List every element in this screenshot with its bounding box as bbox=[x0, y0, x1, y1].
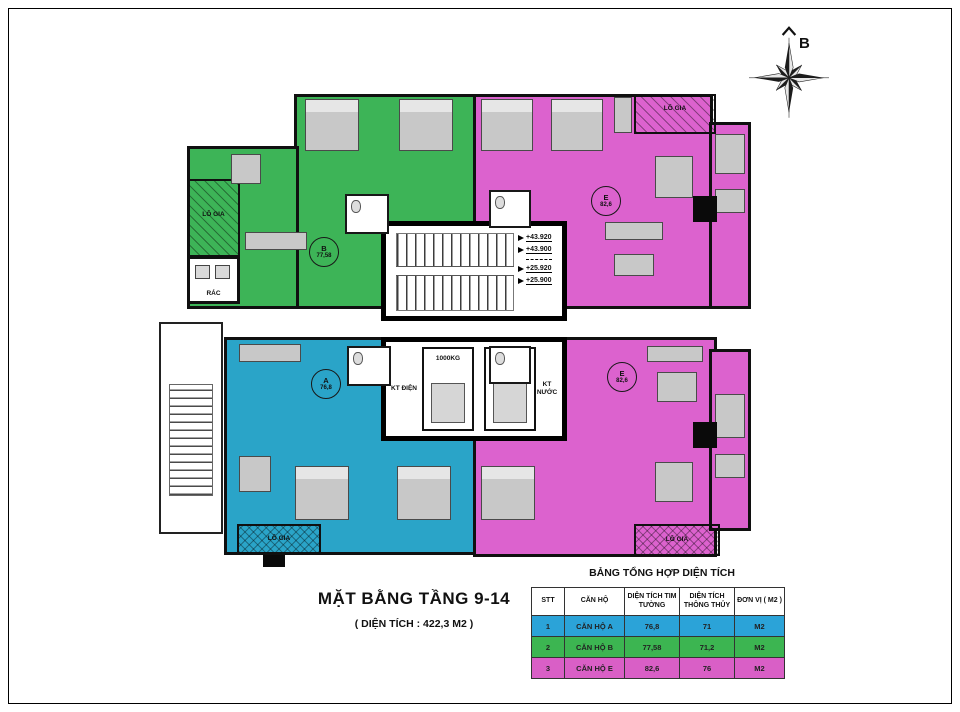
column-header: ĐƠN VỊ ( M2 ) bbox=[735, 588, 785, 616]
section-marker bbox=[693, 196, 717, 222]
section-marker bbox=[263, 555, 285, 567]
toilet bbox=[351, 200, 361, 213]
table-cell: 76 bbox=[680, 658, 735, 679]
table-cell: M2 bbox=[735, 658, 785, 679]
bed bbox=[399, 99, 453, 151]
stairwell: +43.920 +43.900 +25.920 +25.900 bbox=[381, 221, 567, 321]
table-cell: 76,8 bbox=[625, 616, 680, 637]
table-cell: CĂN HỘ B bbox=[565, 637, 625, 658]
unit-label-b: B 77,58 bbox=[309, 237, 339, 267]
sofa bbox=[239, 344, 301, 362]
water-shaft-label: KT NƯỚC bbox=[532, 342, 562, 436]
seat bbox=[715, 189, 745, 213]
elevator-lobby: KT ĐIỆN 1000KG 1000KG KT NƯỚC bbox=[381, 337, 567, 441]
stair-treads bbox=[169, 384, 213, 496]
table-cell: 1 bbox=[532, 616, 565, 637]
elevation-value: +25.900 bbox=[526, 277, 552, 286]
elevation-flag-icon bbox=[518, 278, 524, 284]
section-marker bbox=[693, 422, 717, 448]
bed bbox=[305, 99, 359, 151]
elevation-divider bbox=[526, 259, 552, 260]
plan-subtitle: ( DIỆN TÍCH : 422,3 M2 ) bbox=[264, 618, 564, 630]
unit-letter: E bbox=[603, 194, 608, 202]
bed bbox=[481, 99, 533, 151]
bathroom bbox=[489, 190, 531, 228]
unit-area: 77,58 bbox=[316, 253, 331, 259]
table bbox=[657, 372, 697, 402]
electrical-shaft-label: KT ĐIỆN bbox=[388, 342, 420, 436]
elevation-marks: +43.920 +43.900 +25.920 +25.900 bbox=[518, 232, 566, 287]
balcony-label: LÔ GIA bbox=[636, 536, 718, 543]
elevator-cab bbox=[431, 383, 465, 423]
unit-area: 76,8 bbox=[320, 385, 332, 391]
summary-table: STT CĂN HỘ DIỆN TÍCH TIM TƯỜNG DIỆN TÍCH… bbox=[531, 587, 785, 679]
balcony-label: LÔ GIA bbox=[636, 105, 714, 112]
dining-table bbox=[655, 156, 693, 198]
north-arrow-icon bbox=[783, 28, 796, 35]
toilet bbox=[495, 196, 505, 209]
unit-letter: B bbox=[321, 245, 326, 253]
sofa bbox=[605, 222, 663, 240]
bathroom bbox=[345, 194, 389, 234]
unit-area: 82,6 bbox=[616, 378, 628, 384]
elevation-flag-icon bbox=[518, 247, 524, 253]
unit-label-a: A 76,8 bbox=[311, 369, 341, 399]
elevator-capacity-label: 1000KG bbox=[424, 355, 472, 362]
balcony-bottom-left: LÔ GIA bbox=[237, 524, 321, 554]
table-cell: 82,6 bbox=[625, 658, 680, 679]
balcony-label: LÔ GIA bbox=[239, 535, 319, 542]
stair-landing bbox=[396, 266, 514, 276]
bathroom bbox=[489, 346, 531, 384]
elevation-value: +43.920 bbox=[526, 234, 552, 243]
wardrobe bbox=[715, 134, 745, 174]
exterior-staircase bbox=[159, 322, 223, 534]
balcony-left: LÔ GIA bbox=[187, 179, 240, 257]
wardrobe bbox=[715, 394, 745, 438]
compass-north-label: B bbox=[799, 35, 810, 52]
floor-plan: LÔ GIA LÔ GIA LÔ GIA LÔ GIA RÁC +43.920 bbox=[159, 94, 755, 564]
balcony-top-right: LÔ GIA bbox=[634, 94, 716, 134]
bed bbox=[481, 466, 535, 520]
coffee-table bbox=[614, 254, 654, 276]
unit-label-e-top: E 82,6 bbox=[591, 186, 621, 216]
trash-bin bbox=[195, 265, 210, 279]
table-cell: 71 bbox=[680, 616, 735, 637]
drawing-sheet: B LÔ GIA LÔ GIA LÔ GIA LÔ GIA RÁC bbox=[8, 8, 952, 704]
balcony-label: LÔ GIA bbox=[189, 211, 238, 218]
kitchen-counter bbox=[614, 97, 632, 133]
seat bbox=[715, 454, 745, 478]
table-cell: 2 bbox=[532, 637, 565, 658]
unit-letter: E bbox=[619, 370, 624, 378]
sofa bbox=[245, 232, 307, 250]
toilet bbox=[495, 352, 505, 365]
table-cell: CĂN HỘ E bbox=[565, 658, 625, 679]
column-header: STT bbox=[532, 588, 565, 616]
balcony-bottom-right: LÔ GIA bbox=[634, 524, 720, 556]
unit-area: 82,6 bbox=[600, 202, 612, 208]
table-cell: 3 bbox=[532, 658, 565, 679]
table-cell: 77,58 bbox=[625, 637, 680, 658]
bathroom bbox=[347, 346, 391, 386]
area-summary: BẢNG TỔNG HỢP DIỆN TÍCH STT CĂN HỘ DIỆN … bbox=[531, 567, 793, 679]
plan-title: MẶT BẰNG TẦNG 9-14 bbox=[264, 589, 564, 609]
table-cell: M2 bbox=[735, 616, 785, 637]
bed bbox=[551, 99, 603, 151]
elevation-value: +43.900 bbox=[526, 246, 552, 255]
unit-letter: A bbox=[323, 377, 328, 385]
kitchen-table bbox=[231, 154, 261, 184]
unit-label-e-bottom: E 82,6 bbox=[607, 362, 637, 392]
dining-table bbox=[239, 456, 271, 492]
trash-bin bbox=[215, 265, 230, 279]
column-header: CĂN HỘ bbox=[565, 588, 625, 616]
elevator-1: 1000KG bbox=[422, 347, 474, 431]
table-cell: 71,2 bbox=[680, 637, 735, 658]
table-cell: M2 bbox=[735, 637, 785, 658]
elevator-cab bbox=[493, 383, 527, 423]
dining-table bbox=[655, 462, 693, 502]
table-cell: CĂN HỘ A bbox=[565, 616, 625, 637]
trash-label: RÁC bbox=[190, 290, 237, 297]
summary-title: BẢNG TỔNG HỢP DIỆN TÍCH bbox=[531, 567, 793, 579]
title-block: MẶT BẰNG TẦNG 9-14 ( DIỆN TÍCH : 422,3 M… bbox=[264, 589, 564, 630]
elevation-flag-icon bbox=[518, 266, 524, 272]
elevation-flag-icon bbox=[518, 235, 524, 241]
bed bbox=[397, 466, 451, 520]
trash-room: RÁC bbox=[187, 256, 240, 304]
elevation-value: +25.920 bbox=[526, 265, 552, 274]
bed bbox=[295, 466, 349, 520]
bench bbox=[647, 346, 703, 362]
column-header: DIỆN TÍCH TIM TƯỜNG bbox=[625, 588, 680, 616]
toilet bbox=[353, 352, 363, 365]
column-header: DIỆN TÍCH THÔNG THỦY bbox=[680, 588, 735, 616]
